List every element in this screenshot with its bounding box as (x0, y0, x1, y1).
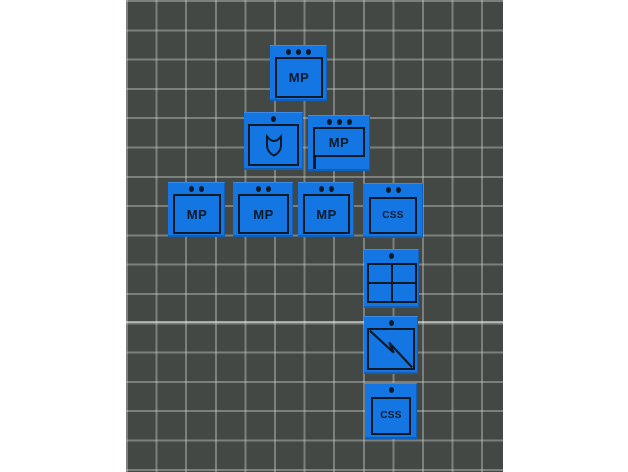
pip-dot (296, 49, 301, 55)
strength-pips (168, 185, 225, 192)
build-plate: MPMPMPMPMPCSSCSS (126, 0, 503, 472)
unit-label: CSS (382, 211, 403, 221)
strength-pips (270, 48, 327, 55)
pip-dot (256, 186, 261, 192)
pip-dot (389, 253, 394, 259)
strength-pips (233, 185, 293, 192)
pip-dot (286, 49, 291, 55)
flag-pole (313, 157, 316, 169)
unit-label: MP (329, 136, 350, 149)
symbol-frame (248, 124, 299, 166)
unit-tile-signal[interactable] (364, 316, 418, 374)
pip-dot (386, 187, 391, 193)
shield-icon (264, 133, 284, 157)
pip-dot (266, 186, 271, 192)
pip-dot (327, 119, 332, 125)
strength-pips (244, 115, 303, 122)
grid-major-line (126, 321, 503, 323)
viewer-canvas: MPMPMPMPMPCSSCSS (0, 0, 628, 472)
pip-dot (271, 116, 276, 122)
pip-dot (389, 387, 394, 393)
symbol-frame: CSS (369, 197, 417, 234)
strength-pips (298, 185, 354, 192)
pip-dot (329, 186, 334, 192)
pip-dot (337, 119, 342, 125)
unit-tile-shield[interactable] (244, 112, 303, 170)
strength-pips (364, 252, 419, 259)
unit-label: MP (316, 208, 337, 221)
unit-tile-css-2[interactable]: CSS (365, 383, 417, 439)
strength-pips (364, 319, 418, 326)
symbol-frame: MP (173, 194, 221, 234)
symbol-frame: CSS (371, 397, 411, 435)
pip-dot (347, 119, 352, 125)
pip-dot (199, 186, 204, 192)
quartered-square-icon (367, 263, 417, 303)
hq-flag: MP (313, 127, 365, 157)
unit-tile-css-1[interactable]: CSS (363, 183, 423, 238)
pip-dot (389, 320, 394, 326)
symbol-frame: MP (238, 194, 289, 234)
lightning-icon (369, 328, 413, 370)
strength-pips (308, 118, 370, 125)
unit-tile-mp-flag[interactable]: MP (308, 115, 370, 171)
pip-dot (306, 49, 311, 55)
pip-dot (189, 186, 194, 192)
unit-tile-mp-1[interactable]: MP (168, 182, 225, 237)
symbol-frame: MP (275, 57, 323, 98)
unit-tile-mp-2[interactable]: MP (233, 182, 293, 237)
unit-label: MP (253, 208, 274, 221)
unit-tile-quartered[interactable] (364, 249, 419, 308)
unit-tile-mp-3[interactable]: MP (298, 182, 354, 237)
unit-label: MP (187, 208, 208, 221)
strength-pips (363, 186, 423, 193)
strength-pips (365, 386, 417, 393)
unit-tile-mp-hq[interactable]: MP (270, 45, 327, 101)
unit-label: CSS (380, 411, 401, 421)
pip-dot (396, 187, 401, 193)
pip-dot (319, 186, 324, 192)
symbol-frame: MP (303, 194, 350, 234)
symbol-frame (367, 328, 415, 370)
unit-label: MP (289, 71, 310, 84)
